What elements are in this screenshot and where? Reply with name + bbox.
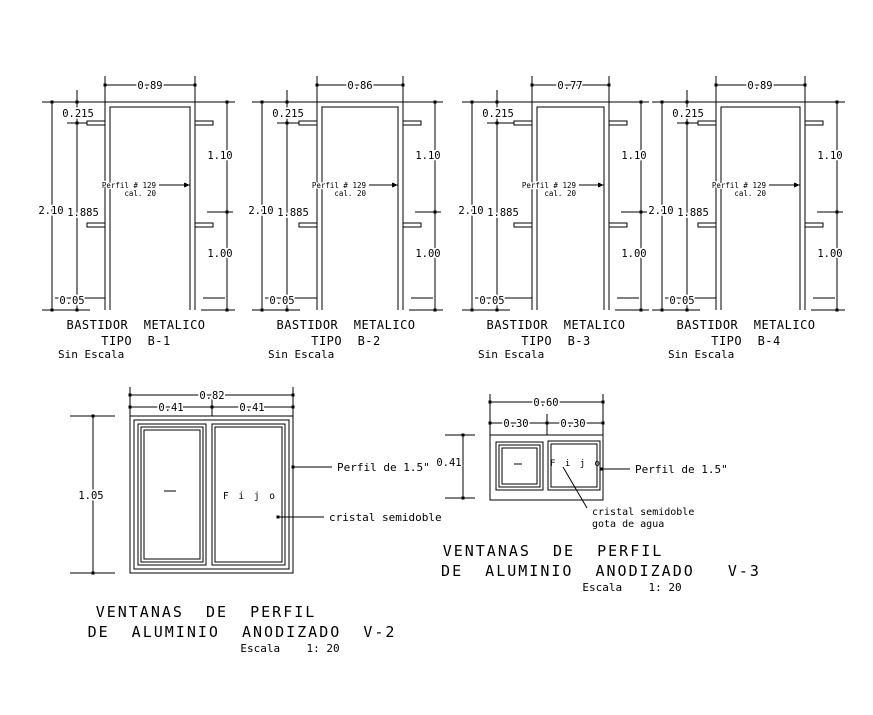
dim-total-height: 2.10 bbox=[458, 205, 483, 217]
dim-right-lower: 1.00 bbox=[207, 248, 232, 260]
leader-arrow-icon bbox=[392, 183, 398, 188]
dim-height: 1.05 bbox=[78, 490, 103, 502]
window-scale-note: Escala 1: 20 bbox=[240, 642, 339, 655]
anchor-tab bbox=[514, 223, 532, 227]
anchor-tab bbox=[698, 121, 716, 125]
fixed-pane-label: F i j o bbox=[550, 459, 602, 469]
profile-callout-line2: cal. 20 bbox=[334, 189, 366, 198]
dim-inner-height: 1.885 bbox=[487, 207, 519, 219]
frame-title-line1: BASTIDOR METALICO bbox=[676, 318, 815, 332]
dim-floor: 0.05 bbox=[479, 295, 504, 307]
dim-top-width: 0.86 bbox=[347, 80, 372, 92]
frame-title-line1: BASTIDOR METALICO bbox=[276, 318, 415, 332]
frame-title-line1: BASTIDOR METALICO bbox=[486, 318, 625, 332]
anchor-tab bbox=[195, 223, 213, 227]
sliding-pane bbox=[138, 424, 206, 565]
window-title-line2: DE ALUMINIO ANODIZADO V-2 bbox=[88, 623, 397, 641]
dim-left-offset: 0.215 bbox=[272, 108, 304, 120]
dim-total-height: 2.10 bbox=[648, 205, 673, 217]
anchor-tab bbox=[805, 121, 823, 125]
dim-left-half: 0.41 bbox=[158, 402, 183, 414]
leader-arrow-icon bbox=[598, 183, 604, 188]
fixed-pane-label: F i j o bbox=[223, 491, 277, 502]
drawing-sheet: 0.89 0.215 2.10 1.885 0.05 1.10 1.00 Per… bbox=[0, 0, 873, 715]
window-title-line2: DE ALUMINIO ANODIZADO V-3 bbox=[441, 562, 761, 580]
glass-callout-line2: gota de agua bbox=[592, 519, 664, 530]
anchor-tab bbox=[403, 223, 421, 227]
glass-callout: cristal semidoble bbox=[329, 511, 442, 524]
frame-scale-note: Sin Escala bbox=[668, 348, 734, 361]
dim-floor: 0.05 bbox=[59, 295, 84, 307]
dim-height: 0.41 bbox=[436, 457, 461, 469]
dim-left-offset: 0.215 bbox=[62, 108, 94, 120]
frame-title-line2: TIPO B-3 bbox=[521, 334, 591, 348]
window-title-line1: VENTANAS DE PERFIL bbox=[96, 603, 317, 621]
dim-top-width: 0.89 bbox=[747, 80, 772, 92]
anchor-tab bbox=[514, 121, 532, 125]
dim-inner-height: 1.885 bbox=[277, 207, 309, 219]
dim-left-half: 0.30 bbox=[503, 418, 528, 430]
profile-callout: Perfil de 1.5" bbox=[635, 463, 728, 476]
dim-left-offset: 0.215 bbox=[482, 108, 514, 120]
dim-floor: 0.05 bbox=[269, 295, 294, 307]
dim-top-width: 0.77 bbox=[557, 80, 582, 92]
leader-arrow-icon bbox=[184, 183, 190, 188]
window-scale-note: Escala 1: 20 bbox=[582, 581, 681, 594]
window-title-line1: VENTANAS DE PERFIL bbox=[443, 542, 664, 560]
dim-right-upper: 1.10 bbox=[415, 150, 440, 162]
anchor-tab bbox=[87, 121, 105, 125]
dim-floor: 0.05 bbox=[669, 295, 694, 307]
window-v3-geometry bbox=[445, 394, 630, 500]
dim-inner-height: 1.885 bbox=[677, 207, 709, 219]
frame-title-line2: TIPO B-2 bbox=[311, 334, 381, 348]
anchor-tab bbox=[299, 223, 317, 227]
anchor-tab bbox=[195, 121, 213, 125]
frame-scale-note: Sin Escala bbox=[478, 348, 544, 361]
frame-b1-diagram: 0.89 0.215 2.10 1.885 0.05 1.10 1.00 Per… bbox=[30, 68, 245, 378]
dim-left-offset: 0.215 bbox=[672, 108, 704, 120]
profile-callout: Perfil de 1.5" bbox=[337, 461, 430, 474]
window-v3-diagram: 0.60 0.30 0.30 0.41 F i j o Perfil de 1.… bbox=[430, 390, 800, 610]
anchor-tab bbox=[609, 121, 627, 125]
sliding-pane bbox=[496, 442, 543, 490]
leader-arrow-icon bbox=[794, 183, 800, 188]
dim-inner-height: 1.885 bbox=[67, 207, 99, 219]
dim-total-width: 0.60 bbox=[533, 397, 558, 409]
window-v2-diagram: 0.82 0.41 0.41 1.05 F i j o Perfil de 1.… bbox=[60, 383, 445, 678]
profile-callout-line2: cal. 20 bbox=[544, 189, 576, 198]
frame-b3-diagram: 0.77 0.215 2.10 1.885 0.05 1.10 1.00 Per… bbox=[450, 68, 665, 378]
frame-b4-diagram: 0.89 0.215 2.10 1.885 0.05 1.10 1.00 Per… bbox=[640, 68, 855, 378]
frame-title-line2: TIPO B-1 bbox=[101, 334, 171, 348]
frame-scale-note: Sin Escala bbox=[58, 348, 124, 361]
dim-right-lower: 1.00 bbox=[817, 248, 842, 260]
anchor-tab bbox=[87, 223, 105, 227]
dim-right-half: 0.30 bbox=[560, 418, 585, 430]
anchor-tab bbox=[403, 121, 421, 125]
sliding-pane bbox=[502, 448, 537, 484]
dim-right-upper: 1.10 bbox=[207, 150, 232, 162]
dim-total-height: 2.10 bbox=[248, 205, 273, 217]
dim-top-width: 0.89 bbox=[137, 80, 162, 92]
sliding-pane bbox=[499, 445, 540, 487]
dim-total-width: 0.82 bbox=[199, 390, 224, 402]
dim-right-lower: 1.00 bbox=[415, 248, 440, 260]
anchor-tab bbox=[609, 223, 627, 227]
profile-callout-line2: cal. 20 bbox=[124, 189, 156, 198]
anchor-tab bbox=[698, 223, 716, 227]
dim-right-half: 0.41 bbox=[239, 402, 264, 414]
anchor-tab bbox=[299, 121, 317, 125]
sliding-pane bbox=[144, 430, 200, 559]
anchor-tab bbox=[805, 223, 823, 227]
window-v2-geometry bbox=[70, 387, 332, 575]
dim-right-upper: 1.10 bbox=[817, 150, 842, 162]
sliding-pane bbox=[141, 427, 203, 562]
profile-callout-line2: cal. 20 bbox=[734, 189, 766, 198]
frame-b2-diagram: 0.86 0.215 2.10 1.885 0.05 1.10 1.00 Per… bbox=[240, 68, 455, 378]
frame-title-line2: TIPO B-4 bbox=[711, 334, 781, 348]
frame-scale-note: Sin Escala bbox=[268, 348, 334, 361]
frame-title-line1: BASTIDOR METALICO bbox=[66, 318, 205, 332]
dim-total-height: 2.10 bbox=[38, 205, 63, 217]
glass-callout-line1: cristal semidoble bbox=[592, 507, 694, 518]
